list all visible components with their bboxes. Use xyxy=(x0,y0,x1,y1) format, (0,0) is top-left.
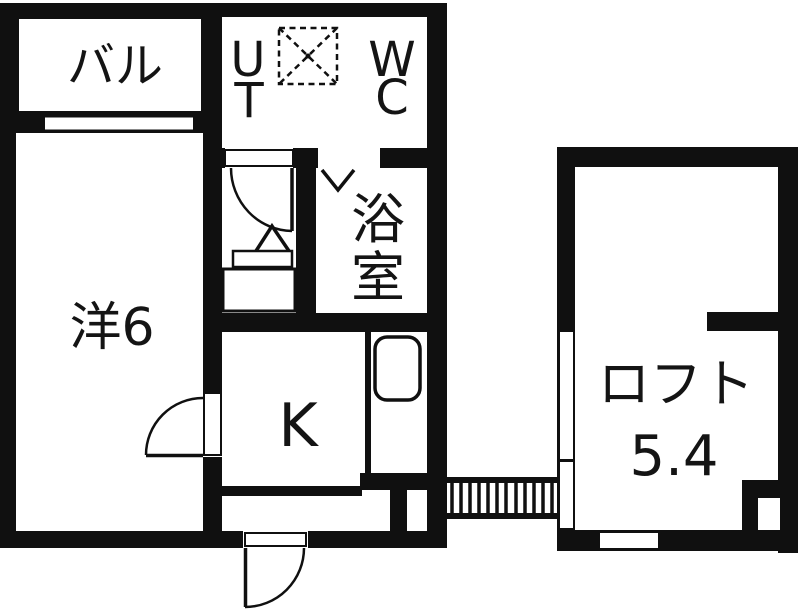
floor-plan-canvas: バル 洋6 U T W C 浴 室 K ロフト 5.4 xyxy=(0,0,800,609)
floor-plan: バル 洋6 U T W C 浴 室 K ロフト 5.4 xyxy=(0,0,800,609)
utility-wall-seg-right xyxy=(380,148,427,168)
ladder-rail-bottom xyxy=(447,513,557,519)
bathroom-left-wall xyxy=(296,168,316,313)
loft-label: ロフト xyxy=(598,355,754,415)
room-door-threshold xyxy=(204,393,221,455)
loft-left-opening-divider xyxy=(557,459,575,462)
bathroom-label-2: 室 xyxy=(351,246,405,309)
entrance-threshold xyxy=(245,533,306,546)
loft-wall-stub-upper xyxy=(707,312,778,331)
hall-step xyxy=(233,251,292,267)
kitchen-sink xyxy=(375,337,420,400)
washer-pan-center-dot xyxy=(306,54,311,59)
bathroom-door-opening xyxy=(318,148,380,168)
kitchen-top-wall xyxy=(203,313,447,332)
utility-wall-seg-mid xyxy=(293,148,318,168)
ladder-rail-top xyxy=(447,477,557,483)
outer-wall-left xyxy=(0,3,16,548)
entry-step-edge xyxy=(218,486,362,496)
outer-wall-bottom xyxy=(0,531,447,548)
outer-wall-top xyxy=(0,3,447,17)
kitchen-label: K xyxy=(278,391,319,461)
western-room-label: 洋6 xyxy=(69,298,154,358)
vanity-unit xyxy=(223,269,295,311)
outer-wall-right xyxy=(427,3,447,548)
loft-bottom-window xyxy=(600,533,658,548)
wc-label-c: C xyxy=(375,70,409,126)
loft-corner-notch xyxy=(758,498,780,530)
loft-left-opening xyxy=(560,332,573,528)
bathroom-label-1: 浴 xyxy=(351,188,405,251)
utility-label-t: T xyxy=(233,73,264,129)
kitchen-counter-edge xyxy=(365,332,371,473)
entry-cabinet-divider xyxy=(390,490,407,531)
balcony-label: バル xyxy=(67,38,163,94)
loft-wall-top xyxy=(557,147,798,167)
utility-door-threshold xyxy=(225,150,293,166)
inner-wall-column xyxy=(203,3,222,392)
counter-bottom-wall xyxy=(360,473,447,490)
balcony-window xyxy=(44,117,194,131)
loft-size-label: 5.4 xyxy=(629,424,718,489)
